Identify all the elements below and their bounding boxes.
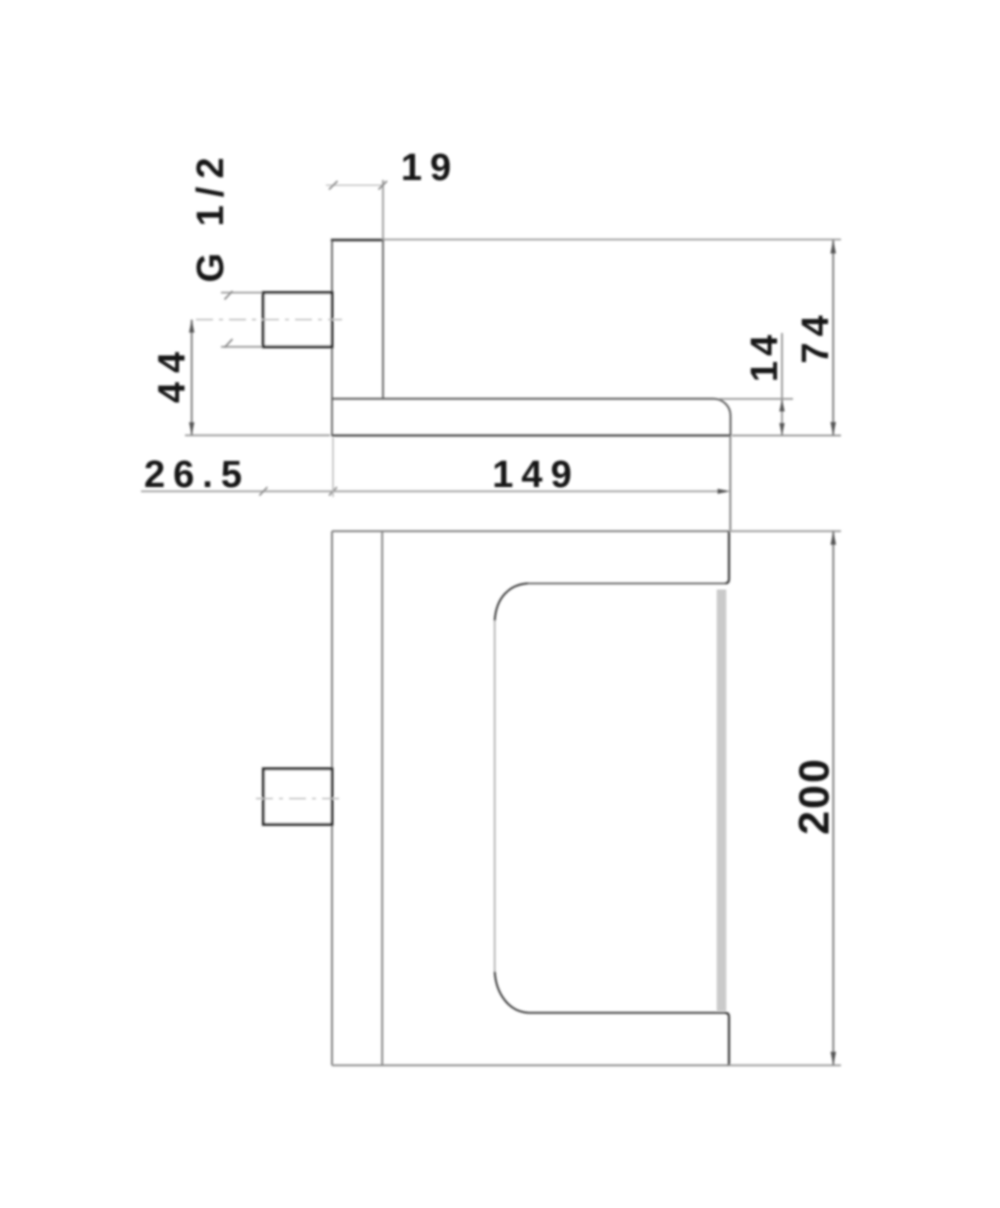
svg-text:200: 200 bbox=[791, 757, 839, 835]
svg-text:G 1/2: G 1/2 bbox=[190, 150, 232, 283]
svg-text:44: 44 bbox=[152, 343, 194, 403]
svg-text:74: 74 bbox=[795, 309, 837, 363]
svg-text:14: 14 bbox=[744, 330, 786, 382]
svg-text:19: 19 bbox=[401, 147, 459, 189]
svg-text:149: 149 bbox=[492, 454, 579, 496]
svg-text:26.5: 26.5 bbox=[144, 454, 250, 496]
